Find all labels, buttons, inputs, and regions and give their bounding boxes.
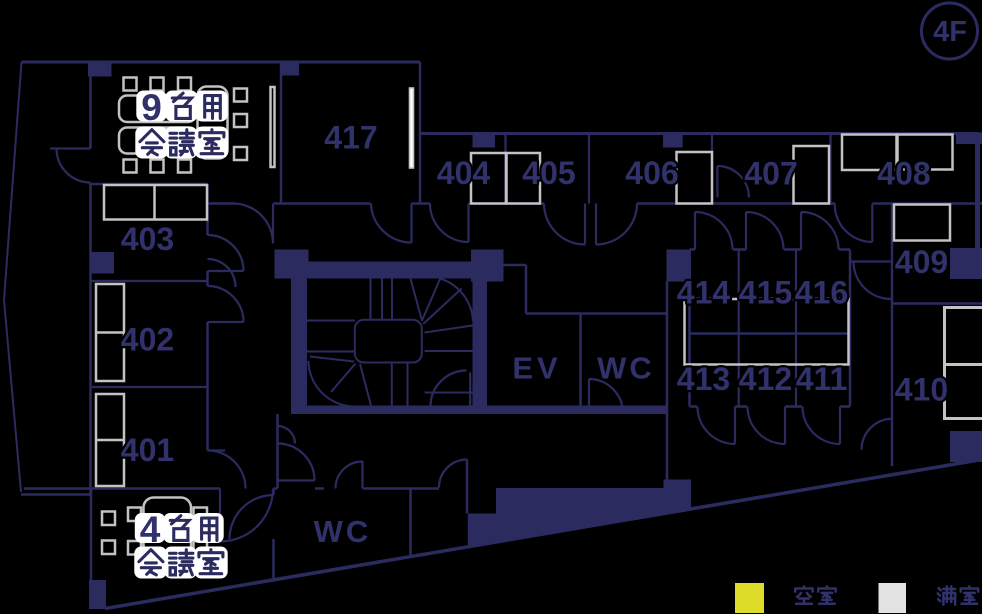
- svg-text:417: 417: [324, 120, 377, 156]
- svg-text:401: 401: [121, 432, 174, 468]
- svg-text:404: 404: [437, 155, 491, 191]
- svg-text:407: 407: [744, 156, 797, 192]
- svg-text:409: 409: [895, 244, 948, 280]
- svg-text:415: 415: [739, 275, 792, 311]
- svg-text:9: 9: [141, 87, 162, 128]
- svg-text:405: 405: [522, 155, 575, 191]
- svg-text:416: 416: [795, 275, 848, 311]
- svg-text:413: 413: [677, 361, 730, 397]
- svg-text:402: 402: [121, 322, 174, 358]
- svg-text:EV: EV: [512, 351, 561, 386]
- svg-text:412: 412: [739, 361, 792, 397]
- svg-text:4: 4: [140, 509, 161, 550]
- svg-text:408: 408: [877, 156, 930, 192]
- svg-text:WC: WC: [597, 351, 655, 386]
- svg-text:414: 414: [677, 275, 731, 311]
- svg-text:403: 403: [121, 221, 174, 257]
- svg-text:4F: 4F: [933, 16, 967, 48]
- svg-text:406: 406: [625, 155, 678, 191]
- svg-text:410: 410: [895, 372, 948, 408]
- svg-text:WC: WC: [314, 514, 372, 549]
- svg-text:411: 411: [796, 361, 848, 397]
